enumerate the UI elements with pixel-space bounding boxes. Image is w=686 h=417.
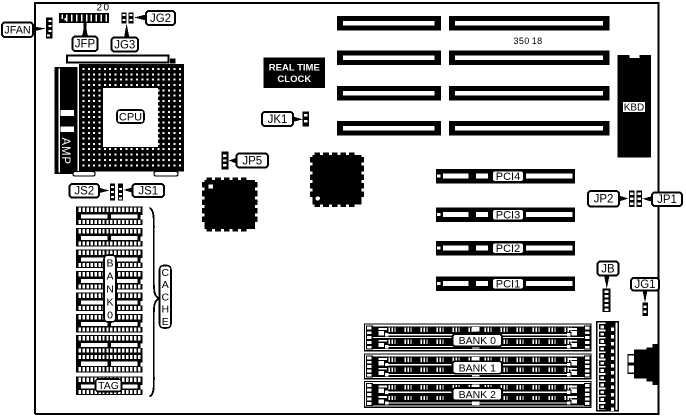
svg-text:BANK 2: BANK 2 <box>459 389 497 401</box>
svg-text:KBD: KBD <box>624 102 645 113</box>
svg-text:REAL TIME: REAL TIME <box>269 63 320 74</box>
svg-text:JK1: JK1 <box>268 114 288 126</box>
svg-text:JP5: JP5 <box>242 155 262 167</box>
svg-text:K: K <box>106 297 113 309</box>
svg-text:CLOCK: CLOCK <box>277 74 311 85</box>
svg-text:JFAN: JFAN <box>4 25 30 37</box>
svg-text:JFP: JFP <box>75 39 96 51</box>
svg-text:N: N <box>106 284 114 296</box>
svg-text:JG3: JG3 <box>114 39 135 51</box>
svg-text:BANK 1: BANK 1 <box>459 362 497 374</box>
svg-text:JP1: JP1 <box>657 194 677 206</box>
svg-text:C: C <box>162 267 170 279</box>
svg-text:0: 0 <box>107 310 113 322</box>
svg-text:PCI4: PCI4 <box>496 171 520 183</box>
svg-text:H: H <box>162 304 170 316</box>
svg-text:JS2: JS2 <box>74 186 94 198</box>
svg-text:35018: 35018 <box>513 36 542 46</box>
svg-text:C: C <box>162 291 170 303</box>
svg-text:PCI2: PCI2 <box>496 243 520 255</box>
svg-text:CPU: CPU <box>119 111 142 123</box>
svg-text:TAG: TAG <box>98 380 119 392</box>
svg-text:A: A <box>162 279 169 291</box>
svg-text:AMP: AMP <box>59 138 71 165</box>
svg-text:20: 20 <box>96 3 110 14</box>
svg-text:B: B <box>106 258 113 270</box>
svg-text:PCI1: PCI1 <box>496 279 520 291</box>
svg-text:A: A <box>106 271 113 283</box>
svg-text:JS1: JS1 <box>138 185 158 197</box>
svg-text:PCI3: PCI3 <box>496 210 520 222</box>
svg-text:E: E <box>162 316 169 328</box>
svg-text:JG1: JG1 <box>634 279 655 291</box>
svg-text:BANK 0: BANK 0 <box>459 335 497 347</box>
svg-text:JP2: JP2 <box>594 194 614 206</box>
svg-text:JB: JB <box>601 263 615 275</box>
svg-text:JG2: JG2 <box>150 13 171 25</box>
